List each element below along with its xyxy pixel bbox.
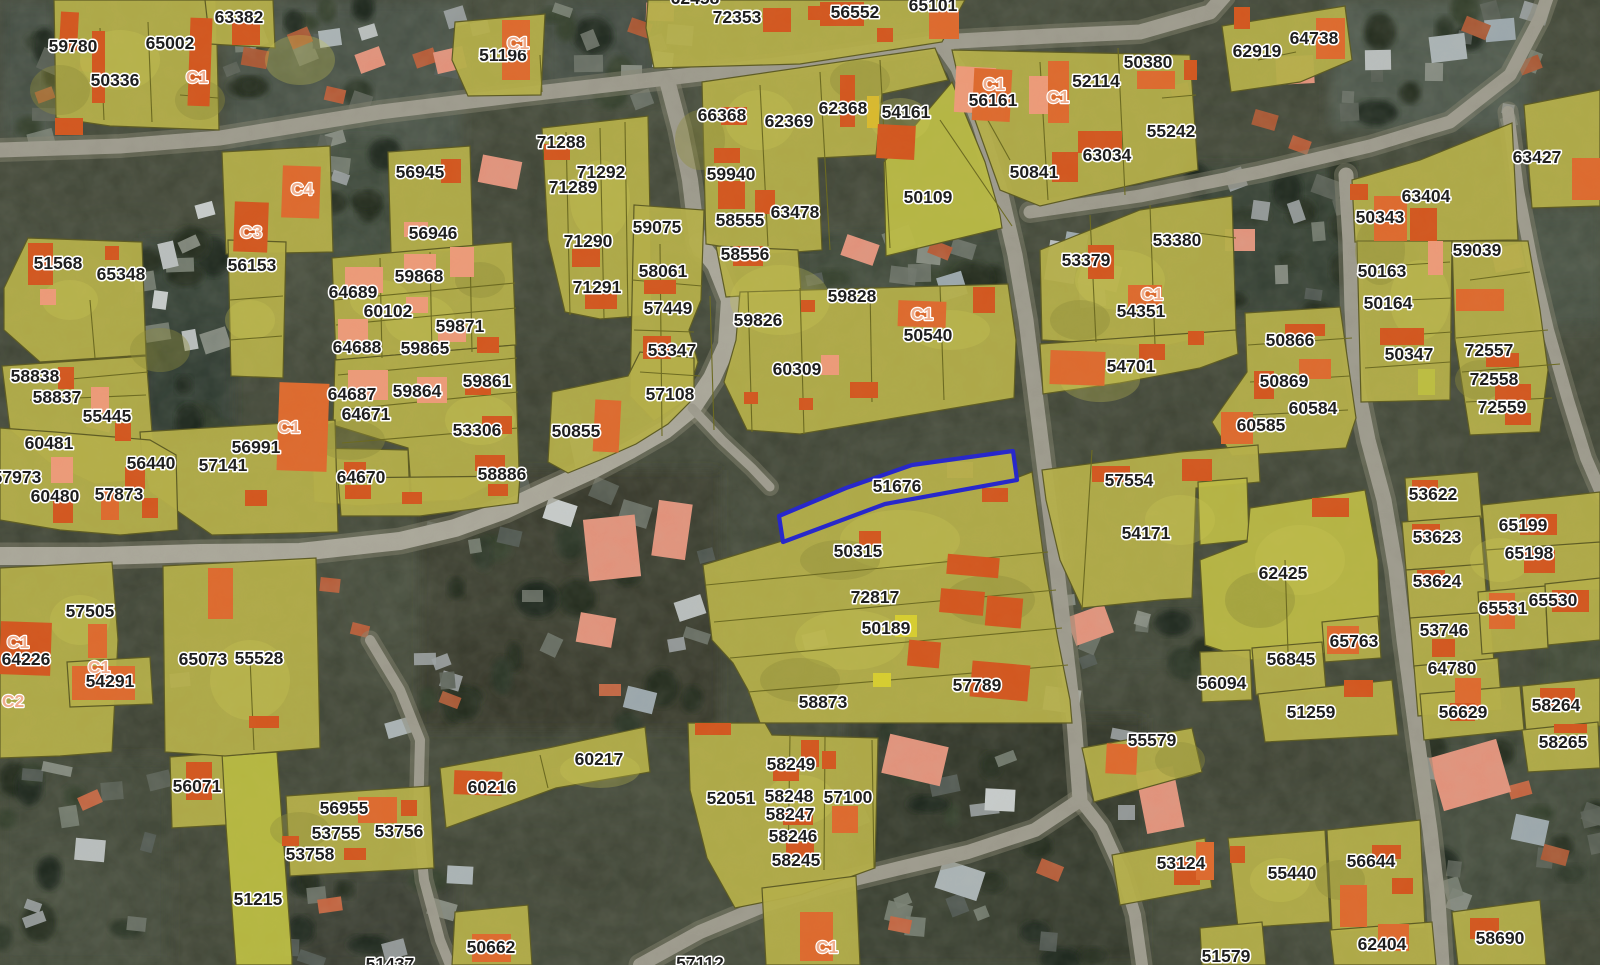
svg-text:58247: 58247	[766, 804, 815, 824]
svg-text:65530: 65530	[1529, 590, 1578, 610]
svg-text:50866: 50866	[1266, 330, 1315, 350]
svg-text:58837: 58837	[33, 387, 82, 407]
svg-text:72559: 72559	[1478, 397, 1527, 417]
svg-text:65101: 65101	[909, 0, 958, 15]
svg-text:51579: 51579	[1202, 946, 1251, 965]
svg-text:C1: C1	[88, 657, 111, 677]
svg-text:62404: 62404	[1358, 934, 1407, 954]
svg-text:60480: 60480	[31, 486, 80, 506]
svg-text:56845: 56845	[1267, 649, 1316, 669]
svg-text:52051: 52051	[707, 788, 756, 808]
svg-text:57554: 57554	[1105, 470, 1154, 490]
svg-text:50343: 50343	[1356, 207, 1405, 227]
svg-text:57449: 57449	[644, 298, 693, 318]
svg-text:58265: 58265	[1539, 732, 1588, 752]
svg-text:60584: 60584	[1289, 398, 1338, 418]
svg-text:64687: 64687	[328, 384, 377, 404]
svg-text:55440: 55440	[1268, 863, 1317, 883]
svg-text:54161: 54161	[882, 102, 931, 122]
svg-text:65531: 65531	[1479, 598, 1528, 618]
svg-text:62368: 62368	[819, 98, 868, 118]
svg-text:57141: 57141	[199, 455, 248, 475]
svg-text:59871: 59871	[436, 316, 485, 336]
svg-text:C1: C1	[911, 304, 934, 324]
svg-text:55528: 55528	[235, 648, 284, 668]
svg-text:59861: 59861	[463, 371, 512, 391]
svg-text:53379: 53379	[1062, 250, 1111, 270]
svg-text:53622: 53622	[1409, 484, 1458, 504]
svg-text:C1: C1	[278, 417, 301, 437]
svg-text:C1: C1	[1047, 87, 1070, 107]
svg-text:53623: 53623	[1413, 527, 1462, 547]
svg-text:59039: 59039	[1453, 240, 1502, 260]
svg-text:65763: 65763	[1330, 631, 1379, 651]
svg-text:56991: 56991	[232, 437, 281, 457]
svg-text:72817: 72817	[851, 587, 900, 607]
svg-text:50163: 50163	[1358, 261, 1407, 281]
svg-text:50869: 50869	[1260, 371, 1309, 391]
svg-text:63478: 63478	[771, 202, 820, 222]
svg-text:53624: 53624	[1413, 571, 1462, 591]
svg-text:50109: 50109	[904, 187, 953, 207]
svg-text:50662: 50662	[467, 937, 516, 957]
svg-text:65348: 65348	[97, 264, 146, 284]
svg-text:56955: 56955	[320, 798, 369, 818]
svg-text:64226: 64226	[2, 649, 51, 669]
svg-text:62425: 62425	[1259, 563, 1308, 583]
svg-text:57108: 57108	[646, 384, 695, 404]
svg-text:58249: 58249	[767, 754, 816, 774]
svg-text:64688: 64688	[333, 337, 382, 357]
svg-text:53746: 53746	[1420, 620, 1469, 640]
svg-text:C1: C1	[186, 67, 209, 87]
svg-text:60216: 60216	[468, 777, 517, 797]
svg-text:64671: 64671	[342, 404, 391, 424]
svg-text:58690: 58690	[1476, 928, 1525, 948]
svg-text:72558: 72558	[1470, 369, 1519, 389]
svg-text:71291: 71291	[573, 277, 622, 297]
svg-text:56153: 56153	[228, 255, 277, 275]
svg-text:64689: 64689	[329, 282, 378, 302]
svg-text:56945: 56945	[396, 162, 445, 182]
svg-text:66368: 66368	[698, 105, 747, 125]
svg-text:58873: 58873	[799, 692, 848, 712]
svg-text:58556: 58556	[721, 244, 770, 264]
svg-text:63034: 63034	[1083, 145, 1132, 165]
svg-text:59780: 59780	[49, 36, 98, 56]
svg-text:55579: 55579	[1128, 730, 1177, 750]
svg-text:64738: 64738	[1290, 28, 1339, 48]
svg-text:56629: 56629	[1439, 702, 1488, 722]
svg-text:54351: 54351	[1117, 301, 1166, 321]
svg-text:57505: 57505	[66, 601, 115, 621]
svg-text:64670: 64670	[337, 467, 386, 487]
svg-text:57789: 57789	[953, 675, 1002, 695]
svg-text:50347: 50347	[1385, 344, 1434, 364]
svg-text:53755: 53755	[312, 823, 361, 843]
svg-text:53756: 53756	[375, 821, 424, 841]
svg-text:72557: 72557	[1465, 340, 1514, 360]
svg-text:60102: 60102	[364, 301, 413, 321]
svg-text:58886: 58886	[478, 464, 527, 484]
svg-text:59868: 59868	[395, 266, 444, 286]
svg-text:62458: 62458	[671, 0, 720, 8]
svg-text:57973: 57973	[0, 467, 42, 487]
svg-text:63427: 63427	[1513, 147, 1562, 167]
svg-text:58248: 58248	[765, 786, 814, 806]
svg-text:57100: 57100	[824, 787, 873, 807]
svg-text:56946: 56946	[409, 223, 458, 243]
svg-text:50164: 50164	[1364, 293, 1413, 313]
svg-text:53124: 53124	[1157, 853, 1206, 873]
svg-text:56071: 56071	[173, 776, 222, 796]
svg-text:50841: 50841	[1010, 162, 1059, 182]
svg-text:52114: 52114	[1072, 71, 1120, 91]
svg-text:51259: 51259	[1287, 702, 1336, 722]
svg-text:58264: 58264	[1532, 695, 1581, 715]
svg-text:53306: 53306	[453, 420, 502, 440]
svg-text:C3: C3	[240, 222, 263, 242]
svg-text:60309: 60309	[773, 359, 822, 379]
svg-text:58061: 58061	[639, 261, 688, 281]
svg-text:71289: 71289	[549, 177, 598, 197]
svg-text:56552: 56552	[831, 2, 880, 22]
svg-text:53758: 53758	[286, 844, 335, 864]
svg-text:71290: 71290	[564, 231, 613, 251]
svg-text:58246: 58246	[769, 826, 818, 846]
svg-text:56440: 56440	[127, 453, 176, 473]
svg-text:65002: 65002	[146, 33, 195, 53]
svg-text:65073: 65073	[179, 649, 228, 669]
svg-text:54171: 54171	[1122, 523, 1171, 543]
svg-text:C1: C1	[816, 937, 839, 957]
svg-text:57112: 57112	[676, 953, 724, 965]
svg-text:51215: 51215	[234, 889, 283, 909]
svg-text:59940: 59940	[707, 164, 756, 184]
svg-text:58245: 58245	[772, 850, 821, 870]
svg-text:51437: 51437	[366, 954, 415, 965]
svg-text:60481: 60481	[25, 433, 74, 453]
svg-text:59826: 59826	[734, 310, 783, 330]
svg-text:50315: 50315	[834, 541, 883, 561]
svg-text:54701: 54701	[1107, 356, 1156, 376]
svg-text:58838: 58838	[11, 366, 60, 386]
svg-text:72353: 72353	[713, 7, 762, 27]
svg-text:64780: 64780	[1428, 658, 1477, 678]
svg-text:50380: 50380	[1124, 52, 1173, 72]
svg-text:59075: 59075	[633, 217, 682, 237]
svg-text:59864: 59864	[393, 381, 442, 401]
svg-text:71288: 71288	[537, 132, 586, 152]
svg-text:65199: 65199	[1499, 515, 1548, 535]
svg-text:63404: 63404	[1402, 186, 1451, 206]
svg-text:C1: C1	[7, 632, 30, 652]
svg-text:57873: 57873	[95, 484, 144, 504]
svg-text:56094: 56094	[1198, 673, 1247, 693]
svg-text:63382: 63382	[215, 7, 264, 27]
svg-text:53380: 53380	[1153, 230, 1202, 250]
svg-text:60585: 60585	[1237, 415, 1286, 435]
svg-text:60217: 60217	[575, 749, 624, 769]
svg-text:55445: 55445	[83, 406, 132, 426]
svg-text:50540: 50540	[904, 325, 953, 345]
svg-text:50855: 50855	[552, 421, 601, 441]
svg-text:62919: 62919	[1233, 41, 1282, 61]
svg-text:51568: 51568	[34, 253, 83, 273]
svg-text:56644: 56644	[1347, 851, 1396, 871]
svg-text:C1: C1	[983, 74, 1006, 94]
svg-text:51676: 51676	[873, 476, 922, 496]
svg-text:53347: 53347	[648, 340, 697, 360]
svg-text:55242: 55242	[1147, 121, 1196, 141]
svg-text:65198: 65198	[1505, 543, 1554, 563]
svg-text:C1: C1	[507, 33, 530, 53]
svg-text:50189: 50189	[862, 618, 911, 638]
svg-text:50336: 50336	[91, 70, 140, 90]
svg-text:58555: 58555	[716, 210, 765, 230]
svg-text:C2: C2	[2, 691, 25, 711]
svg-text:C1: C1	[1141, 284, 1164, 304]
svg-text:59828: 59828	[828, 286, 877, 306]
svg-text:C4: C4	[291, 179, 314, 199]
svg-text:62369: 62369	[765, 111, 814, 131]
svg-text:59865: 59865	[401, 338, 450, 358]
